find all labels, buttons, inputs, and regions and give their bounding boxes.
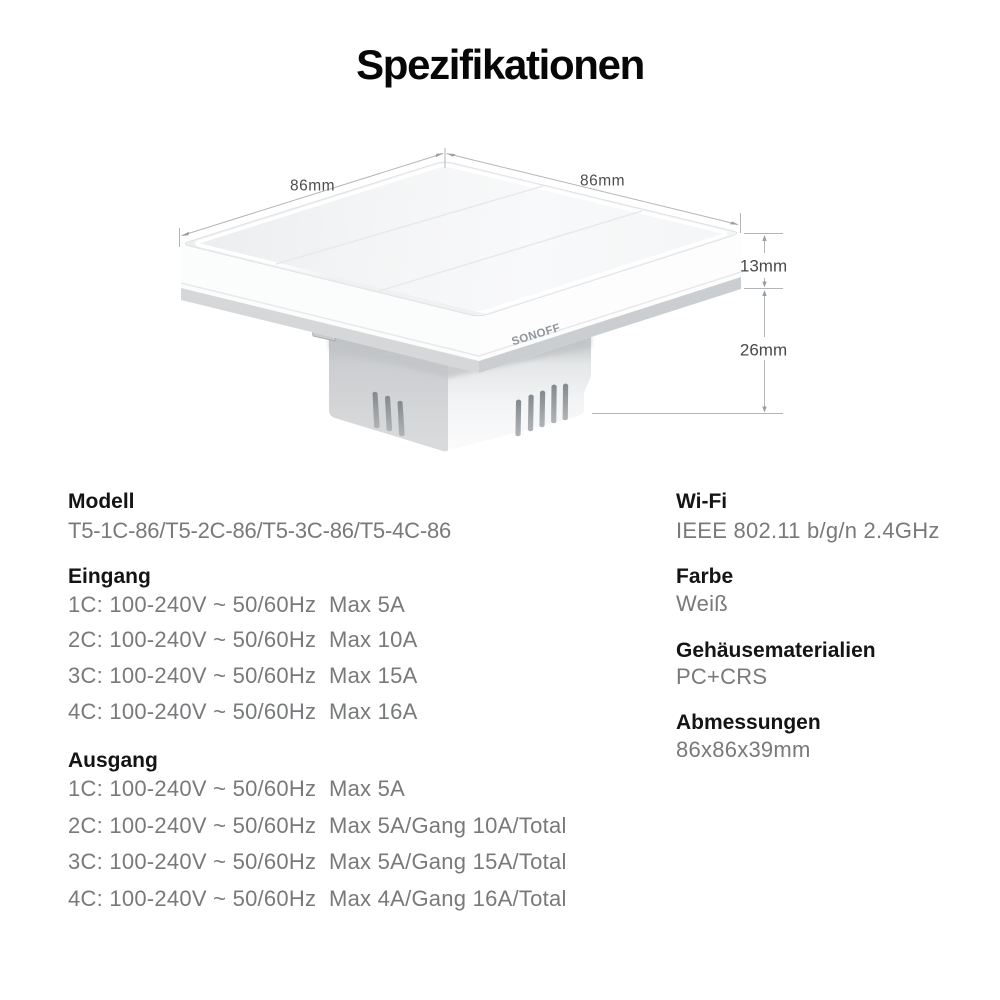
svg-text:26mm: 26mm <box>740 341 787 360</box>
svg-text:13mm: 13mm <box>740 257 787 276</box>
svg-text:86mm: 86mm <box>580 173 625 190</box>
svg-text:86mm: 86mm <box>290 178 335 195</box>
